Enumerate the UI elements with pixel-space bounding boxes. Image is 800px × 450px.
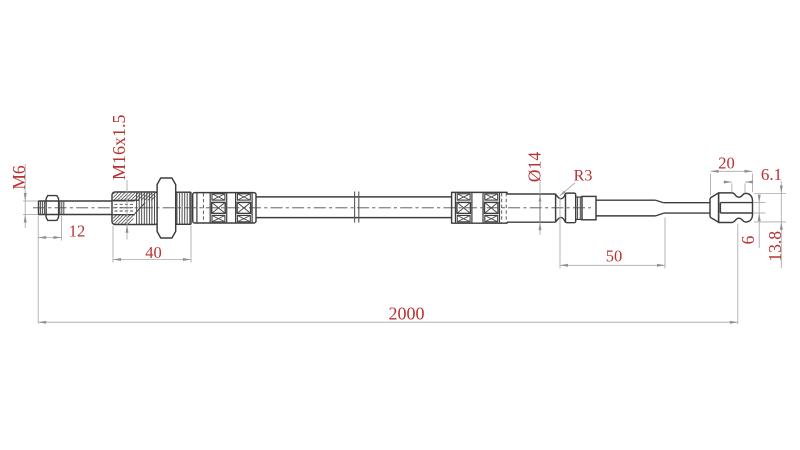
svg-text:6: 6	[738, 235, 758, 244]
svg-text:2000: 2000	[389, 304, 425, 324]
svg-text:Ø14: Ø14	[525, 152, 545, 182]
svg-text:40: 40	[145, 243, 162, 262]
svg-text:M16x1.5: M16x1.5	[109, 115, 129, 181]
svg-text:50: 50	[606, 247, 623, 266]
svg-text:R3: R3	[574, 167, 593, 184]
svg-text:20: 20	[718, 154, 735, 173]
svg-text:12: 12	[69, 222, 86, 241]
svg-text:M6: M6	[9, 165, 29, 190]
svg-text:13.8: 13.8	[765, 231, 785, 262]
svg-text:6.1: 6.1	[761, 165, 782, 184]
